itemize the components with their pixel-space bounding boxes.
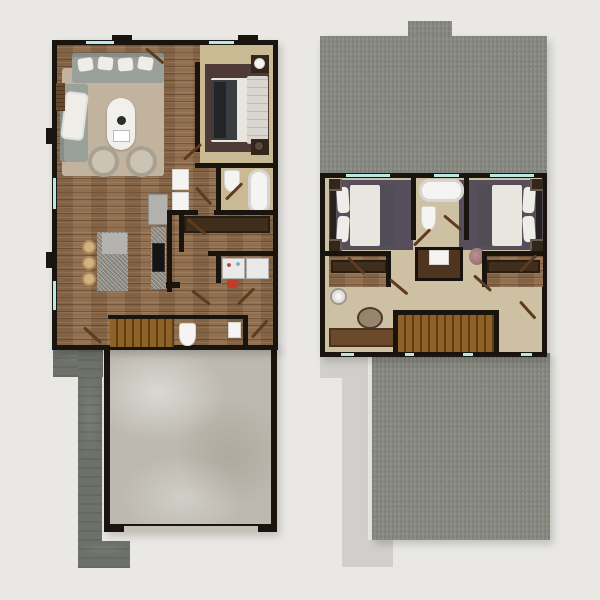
bathroom-wall-left bbox=[411, 178, 416, 240]
wall-pilaster bbox=[46, 128, 52, 144]
vanity-sink bbox=[429, 250, 449, 265]
bed-headboard bbox=[536, 184, 542, 246]
powder-toilet bbox=[179, 323, 196, 346]
coffee-table-bowl bbox=[117, 116, 126, 125]
window bbox=[52, 177, 57, 210]
sofa-pillow bbox=[77, 57, 94, 72]
basket bbox=[357, 307, 383, 329]
powder-wall bbox=[243, 315, 248, 347]
washer bbox=[222, 258, 245, 279]
toilet bbox=[421, 206, 436, 230]
garage-floor bbox=[110, 349, 271, 524]
closet-right-shelving bbox=[487, 260, 540, 273]
wall-pilaster bbox=[112, 35, 132, 40]
bed-headboard bbox=[247, 76, 268, 144]
stair-wall-right bbox=[494, 310, 499, 357]
nightstand bbox=[530, 179, 543, 191]
driveway-walkway-foot bbox=[78, 541, 130, 568]
coffee-table-tray bbox=[113, 130, 130, 142]
window bbox=[340, 352, 355, 357]
vanity-cabinet bbox=[172, 169, 189, 190]
sofa-pillow bbox=[137, 56, 154, 71]
console-table bbox=[329, 328, 396, 347]
laundry-basket bbox=[227, 280, 238, 288]
nightstand bbox=[329, 239, 342, 251]
sofa-pillow bbox=[97, 56, 113, 70]
staircase bbox=[398, 315, 494, 352]
hall-wall bbox=[172, 210, 198, 215]
floor-plan-canvas bbox=[0, 0, 600, 600]
bed-blanket bbox=[380, 185, 395, 246]
table-lamp bbox=[254, 58, 265, 69]
bar-stool bbox=[82, 272, 96, 286]
closet-left-wall bbox=[325, 251, 391, 256]
garage-roof bbox=[372, 353, 550, 540]
window bbox=[462, 352, 474, 357]
cooktop bbox=[152, 243, 165, 272]
kitchen-wall bbox=[167, 210, 172, 292]
accent-chair bbox=[88, 146, 119, 177]
driveway-walkway-vertical bbox=[78, 350, 102, 568]
garage-door bbox=[124, 525, 258, 532]
walkway-outline-foot bbox=[342, 540, 393, 567]
bed-blanket bbox=[477, 185, 492, 246]
nightstand bbox=[329, 179, 342, 191]
window bbox=[52, 280, 57, 311]
accent-chair bbox=[126, 146, 157, 177]
ceiling-fixture bbox=[330, 288, 347, 305]
nightstand bbox=[530, 239, 543, 251]
bed-headboard bbox=[330, 184, 336, 246]
bed-duvet bbox=[350, 185, 380, 246]
bed-duvet bbox=[492, 185, 522, 246]
refrigerator bbox=[148, 194, 168, 225]
bathroom-wall-right bbox=[464, 178, 469, 240]
wall-pilaster bbox=[238, 35, 258, 40]
window bbox=[208, 40, 235, 45]
upper-roof bbox=[320, 36, 547, 175]
bar-stool bbox=[82, 240, 96, 254]
wall-pilaster bbox=[46, 252, 52, 268]
laundry-wall bbox=[216, 256, 221, 283]
bedroom-partition-wall bbox=[195, 62, 200, 152]
window bbox=[433, 173, 460, 178]
window bbox=[520, 352, 533, 357]
table-lamp bbox=[254, 141, 264, 151]
console-at-window bbox=[56, 83, 65, 111]
freestanding-tub bbox=[248, 169, 270, 214]
closet-wall bbox=[179, 215, 184, 252]
freestanding-tub bbox=[419, 179, 464, 202]
hall-wall bbox=[214, 210, 278, 215]
walkway-outline-vertical bbox=[342, 350, 368, 567]
dryer bbox=[246, 258, 269, 279]
powder-sink bbox=[228, 322, 241, 338]
window bbox=[404, 352, 415, 357]
chimney bbox=[408, 21, 452, 37]
sofa-pillow bbox=[117, 57, 133, 71]
bar-stool bbox=[82, 256, 96, 270]
bed-throw bbox=[214, 82, 226, 138]
window bbox=[85, 40, 115, 45]
staircase bbox=[110, 319, 174, 347]
window bbox=[489, 173, 535, 178]
window bbox=[345, 173, 391, 178]
island-cutting-board bbox=[102, 233, 127, 254]
